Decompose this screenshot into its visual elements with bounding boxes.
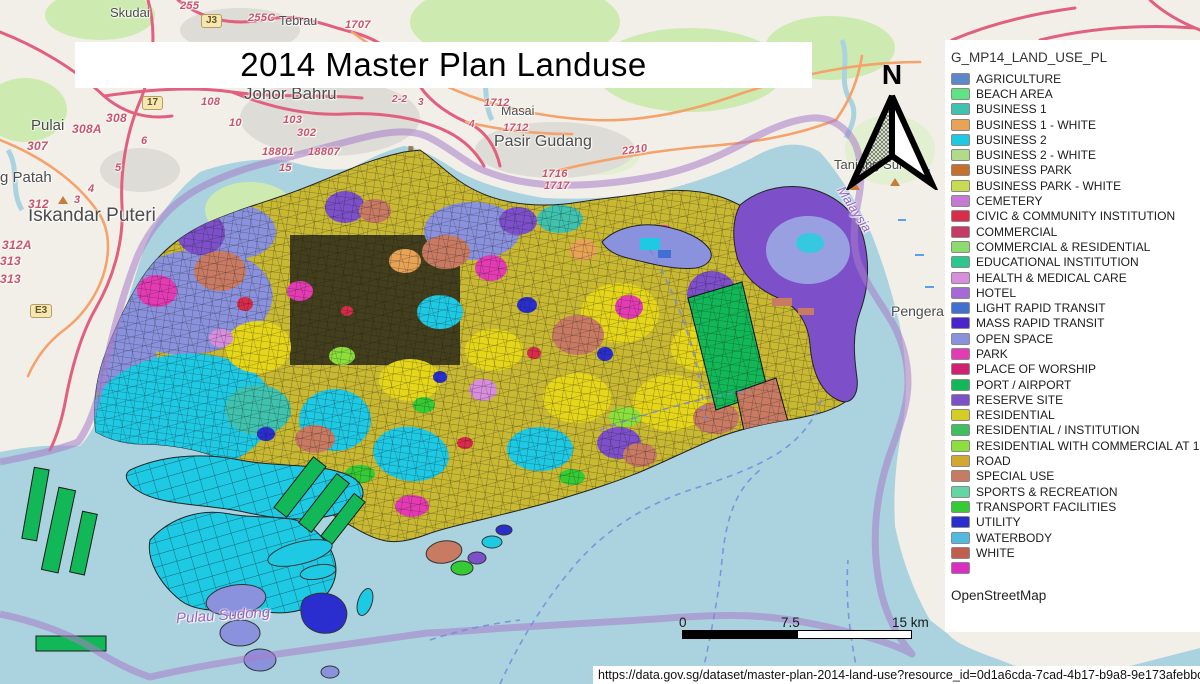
road-shield: E3 (30, 304, 52, 318)
road-shield: 17 (142, 96, 163, 110)
legend-swatch (951, 164, 970, 176)
place-label: Tebrau (279, 15, 317, 28)
legend-swatch (951, 103, 970, 115)
road-ref: 313 (0, 273, 21, 285)
road-ref: 1712 (503, 123, 529, 134)
legend-label: SPORTS & RECREATION (976, 485, 1118, 499)
road-ref: 108 (201, 97, 220, 108)
road-ref: 255 (180, 1, 199, 12)
legend-item: RESIDENTIAL (951, 408, 1200, 423)
legend-swatch (951, 501, 970, 513)
legend-item: HOTEL (951, 285, 1200, 300)
legend-item: SPORTS & RECREATION (951, 484, 1200, 499)
peak-icon (58, 196, 68, 204)
road-ref: 2-2 (392, 95, 407, 105)
road-ref: 4 (88, 184, 94, 195)
road-ref: 3 (74, 195, 80, 206)
legend-swatch (951, 394, 970, 406)
legend-label: COMMERCIAL & RESIDENTIAL (976, 240, 1150, 254)
legend-item: HEALTH & MEDICAL CARE (951, 270, 1200, 285)
legend-swatch (951, 73, 970, 85)
legend-swatch (951, 532, 970, 544)
legend-item: COMMERCIAL (951, 224, 1200, 239)
road-ref: 3 (418, 98, 424, 108)
legend-item: UTILITY (951, 515, 1200, 530)
map-export-page: Skudai Tebrau Johor Bahru Masai Pasir Gu… (0, 0, 1200, 684)
legend-label: RESERVE SITE (976, 393, 1063, 407)
road-ref: 18801 (262, 147, 294, 158)
legend-swatch (951, 470, 970, 482)
legend-item: CIVIC & COMMUNITY INSTITUTION (951, 209, 1200, 224)
road-ref: 15 (279, 163, 292, 174)
legend-swatch (951, 486, 970, 498)
legend-item: ROAD (951, 453, 1200, 468)
legend-item: BUSINESS 1 - WHITE (951, 117, 1200, 132)
road-shield: J3 (201, 14, 222, 28)
legend-label: ROAD (976, 454, 1011, 468)
place-label: Skudai (110, 6, 150, 19)
legend-label: HEALTH & MEDICAL CARE (976, 271, 1127, 285)
legend-label: PLACE OF WORSHIP (976, 362, 1096, 376)
legend-label: COMMERCIAL (976, 225, 1057, 239)
legend-attribution: OpenStreetMap (951, 588, 1200, 603)
road-ref: 103 (283, 115, 302, 126)
legend-swatch (951, 333, 970, 345)
legend-item: BUSINESS PARK (951, 163, 1200, 178)
road-ref: 4 (469, 120, 475, 130)
legend-swatch (951, 226, 970, 238)
scale-start: 0 (679, 615, 687, 630)
legend-label: LIGHT RAPID TRANSIT (976, 301, 1106, 315)
road-ref: 1716 (542, 169, 568, 180)
legend-label: EDUCATIONAL INSTITUTION (976, 255, 1139, 269)
legend-swatch (951, 379, 970, 391)
legend-item: PLACE OF WORSHIP (951, 362, 1200, 377)
legend-label: AGRICULTURE (976, 72, 1061, 86)
legend-item: OPEN SPACE (951, 331, 1200, 346)
road-ref: 10 (229, 118, 242, 129)
legend-swatch (951, 302, 970, 314)
legend-label: BUSINESS 2 - WHITE (976, 148, 1096, 162)
legend-label: CEMETERY (976, 194, 1042, 208)
road-ref: 312A (2, 239, 32, 251)
north-label: N (882, 59, 902, 90)
road-ref: 1717 (544, 181, 570, 192)
road-ref: 313 (0, 255, 21, 267)
legend-item: WATERBODY (951, 530, 1200, 545)
legend-swatch (951, 134, 970, 146)
legend-item: MASS RAPID TRANSIT (951, 316, 1200, 331)
legend-swatch (951, 119, 970, 131)
north-arrow-left (852, 96, 892, 184)
legend-label: MASS RAPID TRANSIT (976, 316, 1104, 330)
scale-bar-white-segment (798, 630, 913, 639)
legend-item: TRANSPORT FACILITIES (951, 499, 1200, 514)
legend-swatch (951, 516, 970, 528)
legend-swatch (951, 317, 970, 329)
road-ref: 312 (28, 198, 49, 210)
road-ref: 308A (72, 123, 102, 135)
scale-bar-black-segment (682, 630, 798, 639)
legend-swatch (951, 562, 970, 574)
legend-item: RESIDENTIAL WITH COMMERCIAL AT 1ST (951, 438, 1200, 453)
legend-label: BUSINESS PARK (976, 163, 1072, 177)
legend-swatch (951, 195, 970, 207)
legend-swatch (951, 287, 970, 299)
legend-label: PARK (976, 347, 1008, 361)
legend-swatch (951, 547, 970, 559)
legend-item: BEACH AREA (951, 86, 1200, 101)
scale-bar: 0 7.5 15 km (676, 615, 940, 639)
legend-swatch (951, 88, 970, 100)
legend-heading: G_MP14_LAND_USE_PL (951, 50, 1200, 65)
legend-label: BUSINESS 2 (976, 133, 1047, 147)
north-arrow-right (892, 96, 932, 184)
legend-swatch (951, 272, 970, 284)
legend-label: CIVIC & COMMUNITY INSTITUTION (976, 209, 1175, 223)
legend-item: BUSINESS 2 - WHITE (951, 147, 1200, 162)
place-label: Pulai (31, 118, 64, 133)
legend-label: WHITE (976, 546, 1015, 560)
legend-label: WATERBODY (976, 531, 1052, 545)
road-ref: 255C (248, 13, 276, 24)
legend-swatch (951, 180, 970, 192)
legend-label: RESIDENTIAL / INSTITUTION (976, 423, 1140, 437)
legend-swatch (951, 149, 970, 161)
legend-item: SPECIAL USE (951, 469, 1200, 484)
legend-item: RESIDENTIAL / INSTITUTION (951, 423, 1200, 438)
legend-item: BUSINESS 2 (951, 132, 1200, 147)
road-ref: 308 (106, 112, 127, 124)
scale-mid: 7.5 (781, 615, 800, 630)
legend-swatch (951, 256, 970, 268)
legend-item: LIGHT RAPID TRANSIT (951, 300, 1200, 315)
legend-swatch (951, 455, 970, 467)
legend-item: PARK (951, 346, 1200, 361)
legend-item (951, 561, 1200, 576)
road-ref: 307 (27, 140, 48, 152)
legend-item: BUSINESS PARK - WHITE (951, 178, 1200, 193)
page-title: 2014 Master Plan Landuse (240, 46, 646, 84)
legend-panel: G_MP14_LAND_USE_PL AGRICULTURE BEACH ARE… (945, 40, 1200, 632)
legend-label: BUSINESS 1 - WHITE (976, 118, 1096, 132)
legend-swatch (951, 409, 970, 421)
legend-swatch (951, 363, 970, 375)
legend-label: RESIDENTIAL WITH COMMERCIAL AT 1ST (976, 439, 1200, 453)
legend-label: BUSINESS PARK - WHITE (976, 179, 1121, 193)
road-ref: 6 (141, 136, 147, 147)
legend-label: RESIDENTIAL (976, 408, 1055, 422)
legend-label: BEACH AREA (976, 87, 1053, 101)
legend-label: PORT / AIRPORT (976, 378, 1071, 392)
legend-label: BUSINESS 1 (976, 102, 1047, 116)
legend-item: BUSINESS 1 (951, 102, 1200, 117)
road-ref: 302 (297, 128, 316, 139)
legend-item: PORT / AIRPORT (951, 377, 1200, 392)
legend-swatch (951, 348, 970, 360)
legend-item: EDUCATIONAL INSTITUTION (951, 255, 1200, 270)
legend-item: RESERVE SITE (951, 392, 1200, 407)
scale-end: 15 km (892, 615, 929, 630)
source-url: https://data.gov.sg/dataset/master-plan-… (593, 666, 1200, 684)
legend-item: WHITE (951, 545, 1200, 560)
place-label: g Patah (0, 170, 52, 185)
legend-label: HOTEL (976, 286, 1016, 300)
legend-label: UTILITY (976, 515, 1021, 529)
road-ref: 18807 (308, 147, 340, 158)
legend-label: SPECIAL USE (976, 469, 1054, 483)
legend-item: CEMETERY (951, 193, 1200, 208)
legend-item: AGRICULTURE (951, 71, 1200, 86)
map-title-box: 2014 Master Plan Landuse (75, 42, 812, 88)
place-label: Pengera (891, 304, 944, 318)
legend-item: COMMERCIAL & RESIDENTIAL (951, 239, 1200, 254)
road-ref: 1707 (345, 20, 371, 31)
legend-swatch (951, 440, 970, 452)
legend-swatch (951, 210, 970, 222)
legend-swatch (951, 424, 970, 436)
place-label: Pasir Gudang (494, 134, 592, 150)
legend-label: OPEN SPACE (976, 332, 1053, 346)
legend-swatch (951, 241, 970, 253)
legend-label: TRANSPORT FACILITIES (976, 500, 1116, 514)
road-ref: 1712 (484, 98, 510, 109)
road-ref: 5 (115, 163, 121, 174)
